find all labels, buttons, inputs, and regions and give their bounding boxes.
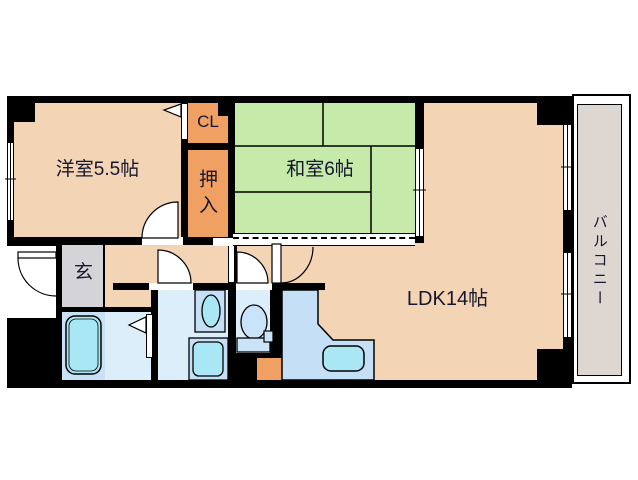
label-ldk: LDK14帖: [380, 289, 515, 310]
toilet-flush-knob: [264, 331, 273, 342]
label-entrance: 玄: [62, 263, 105, 283]
label-japanese-room: 和室6帖: [250, 160, 390, 180]
door-swing-toilet: [237, 252, 268, 283]
label-western-room: 洋室5.5帖: [30, 160, 165, 180]
bathtub: [66, 316, 101, 374]
washbasin-bowl: [202, 295, 220, 327]
toilet-bowl: [241, 305, 267, 339]
door-swing-western: [142, 202, 178, 238]
cl-door-triangle-icon: [164, 104, 181, 117]
kitchen-sink: [323, 346, 364, 371]
door-leaf-ldk: [272, 244, 281, 283]
bath-door-triangle-icon: [129, 317, 146, 333]
door-swing-ldk: [281, 247, 313, 283]
door-swing-entrance: [18, 258, 56, 296]
washing-machine-drum: [193, 342, 223, 376]
label-oshiire: 押入: [196, 169, 216, 221]
door-swing-washroom: [158, 250, 191, 283]
door-leaf-entrance: [18, 252, 56, 258]
floorplan-canvas: 洋室5.5帖 CL 押入 和室6帖 LDK14帖 玄 バルコニー: [0, 0, 638, 480]
fixtures-overlay: [0, 0, 638, 480]
label-balcony: バルコニー: [591, 214, 607, 309]
label-closet-cl: CL: [188, 113, 228, 131]
